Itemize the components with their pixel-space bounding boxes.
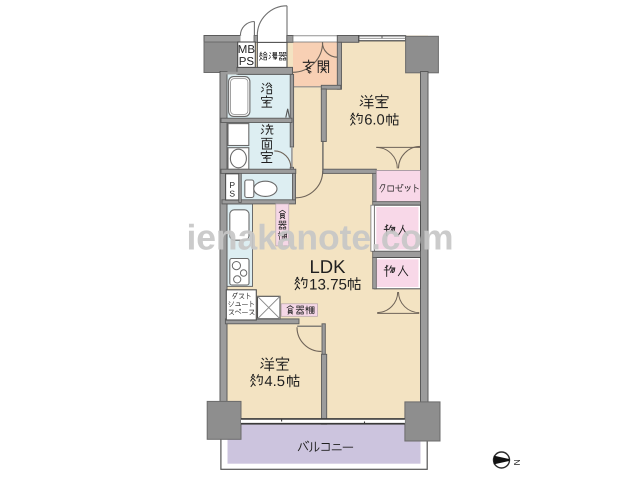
svg-text:LDK: LDK [310,256,347,277]
svg-text:MB: MB [238,44,256,56]
svg-text:4.5: 4.5 [264,374,285,390]
svg-text:PS: PS [239,56,255,68]
svg-text:13.75: 13.75 [309,276,347,293]
svg-text:ienakanote.com: ienakanote.com [187,218,454,258]
svg-text:S: S [229,189,235,199]
svg-text:6.0: 6.0 [364,113,385,129]
svg-text:N: N [512,459,522,465]
